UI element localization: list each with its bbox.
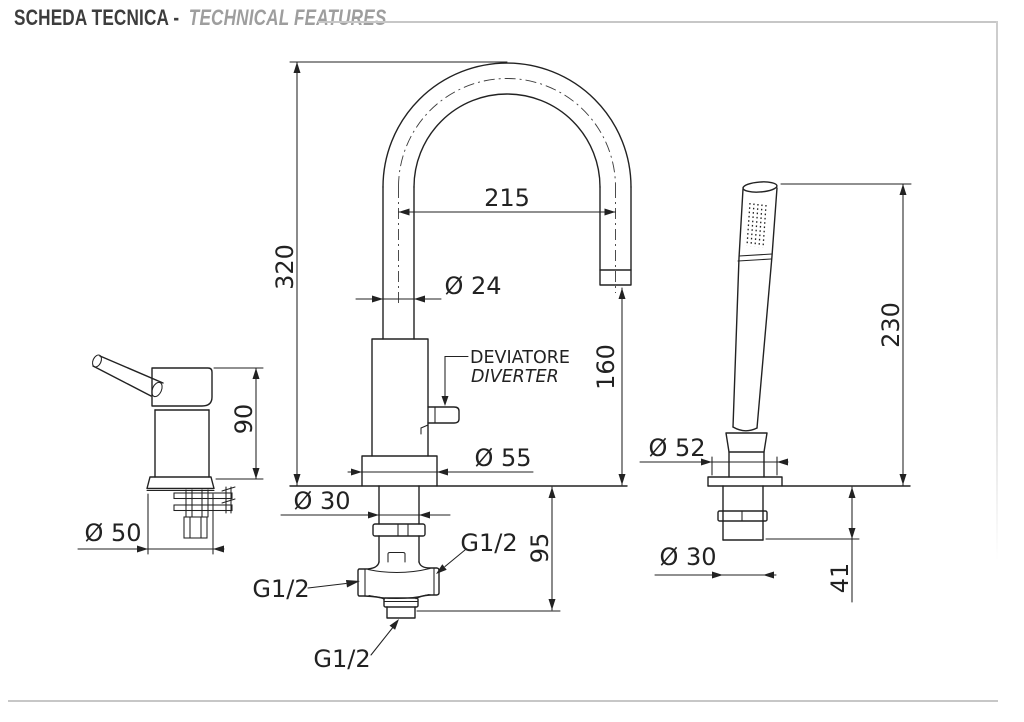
thread-label-left-value: G1/2 xyxy=(252,575,309,603)
spray-face xyxy=(747,203,766,248)
spout-drawing: 320 215 Ø 24 160 xyxy=(252,62,631,673)
diverter-knob xyxy=(421,407,459,434)
underdeck-valve xyxy=(358,486,439,618)
handshower-drawing: 230 Ø 52 Ø 30 41 xyxy=(640,181,911,602)
dim-spout-base-diameter-value: Ø 55 xyxy=(474,444,531,472)
thread-label-right-value: G1/2 xyxy=(460,529,517,557)
handshower-underdeck-shank xyxy=(718,486,767,540)
dim-handshower-underdeck-depth-value: 41 xyxy=(826,563,854,594)
thread-label-bottom: G1/2 xyxy=(313,619,399,673)
thread-label-bottom-value: G1/2 xyxy=(313,645,370,673)
handle-drawing: 90 Ø 50 xyxy=(78,354,263,554)
dim-handshower-height-value: 230 xyxy=(877,302,905,348)
dim-handshower-underdeck-depth: 41 xyxy=(766,487,859,602)
dim-handle-height: 90 xyxy=(214,368,263,479)
dim-spout-pipe-diameter-value: Ø 24 xyxy=(444,272,501,300)
dim-spout-base-diameter: Ø 55 xyxy=(348,444,533,476)
thread-label-right: G1/2 xyxy=(436,529,518,574)
dim-spout-reach: 215 xyxy=(399,184,616,216)
dim-spout-reach-value: 215 xyxy=(484,184,530,212)
dim-handle-height-value: 90 xyxy=(230,404,258,435)
dim-handshower-shank-diameter-value: Ø 30 xyxy=(659,543,716,571)
dim-spout-outlet-height: 160 xyxy=(592,288,626,485)
handle-mounting-hardware xyxy=(174,487,235,538)
dim-holder-diameter-value: Ø 52 xyxy=(648,434,705,462)
label-diverter-italian: DEVIATORE xyxy=(470,348,570,368)
handshower-outline xyxy=(733,181,777,431)
technical-sheet: SCHEDA TECNICA - TECHNICAL FEATURES xyxy=(0,0,1024,722)
dim-spout-outlet-height-value: 160 xyxy=(592,344,620,390)
dim-handshower-shank-diameter: Ø 30 xyxy=(655,543,776,579)
thread-label-left: G1/2 xyxy=(252,575,360,603)
dim-spout-shank-diameter-value: Ø 30 xyxy=(293,487,350,515)
label-diverter: DEVIATORE DIVERTER xyxy=(442,348,570,406)
dim-spout-total-height-value: 320 xyxy=(271,244,299,290)
dim-spout-pipe-diameter: Ø 24 xyxy=(356,272,502,303)
dim-handle-base-diameter-value: Ø 50 xyxy=(84,519,141,547)
dim-handshower-height: 230 xyxy=(781,184,911,486)
dim-spout-underdeck-depth-value: 95 xyxy=(526,533,554,564)
handle-outline xyxy=(91,354,214,491)
handshower-holder xyxy=(708,433,782,486)
dim-spout-shank-diameter: Ø 30 xyxy=(281,487,450,519)
technical-drawing-svg: 90 Ø 50 xyxy=(0,0,1024,722)
label-diverter-english: DIVERTER xyxy=(471,367,559,387)
